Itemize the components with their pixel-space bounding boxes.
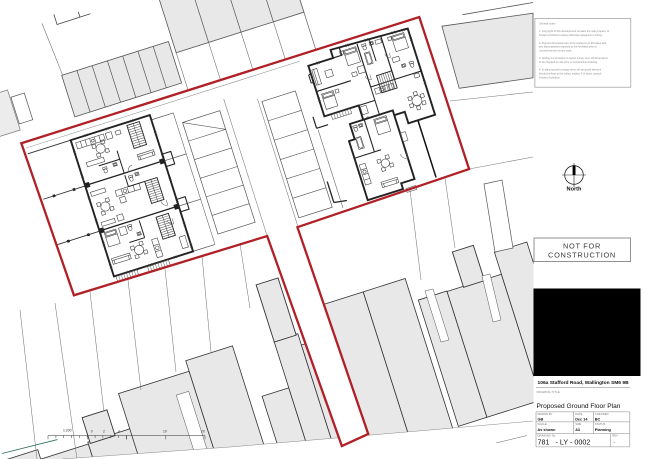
svg-text:General notes:: General notes: — [539, 22, 556, 26]
svg-text:DATE: DATE — [575, 412, 582, 416]
svg-text:DRAWING TITLE: DRAWING TITLE — [537, 390, 560, 394]
svg-text:BC: BC — [595, 417, 601, 421]
svg-text:SIZE: SIZE — [575, 422, 581, 426]
svg-text:North: North — [567, 187, 582, 193]
svg-text:Planning: Planning — [595, 428, 612, 432]
svg-text:Dec 14: Dec 14 — [575, 417, 588, 421]
svg-text:should be kept at the collect: should be kept at the collect settled. I… — [539, 72, 602, 76]
svg-text:2: 2 — [103, 429, 105, 433]
svg-text:4. In planning and ecology te: 4. In planning and ecology terms all str… — [539, 68, 601, 72]
svg-text:REV: REV — [612, 434, 618, 438]
svg-text:10: 10 — [163, 429, 167, 433]
svg-text:A3: A3 — [575, 428, 580, 432]
svg-text:Fosters Architects unless othe: Fosters Architects unless otherwise assi… — [539, 33, 603, 37]
svg-text:Proposed Ground Floor Plan: Proposed Ground Floor Plan — [537, 403, 621, 410]
svg-text:NOT FOR: NOT FOR — [563, 241, 601, 250]
svg-text:SCALE: SCALE — [538, 422, 547, 426]
svg-text:any discrepancies reported to: any discrepancies reported to the Archit… — [539, 45, 597, 49]
svg-text:STATUS: STATUS — [595, 422, 606, 426]
svg-text:781 - LY - 0002: 781 - LY - 0002 — [538, 437, 591, 446]
svg-text:As shown: As shown — [538, 428, 557, 432]
svg-text:3. Setting out is based on me: 3. Setting out is based on metric survey… — [539, 56, 608, 60]
svg-text:GB: GB — [538, 417, 544, 421]
svg-text:106a Stafford Road, Wallington: 106a Stafford Road, Wallington SM6 9B — [538, 380, 630, 386]
svg-text:Fosters Architects.: Fosters Architects. — [539, 75, 561, 79]
svg-text:1. Copyright of this developm: 1. Copyright of this development remains… — [539, 29, 609, 33]
svg-text:4: 4 — [118, 429, 120, 433]
svg-text:DRAWN BY: DRAWN BY — [538, 412, 553, 416]
svg-text:CONSTRUCTION: CONSTRUCTION — [548, 251, 616, 260]
svg-text:2. Figured dimensions are to: 2. Figured dimensions are to be worked t… — [539, 41, 607, 45]
svg-text:to be checked on site prior to: to be checked on site prior to construct… — [539, 60, 598, 64]
svg-text:20: 20 — [201, 429, 205, 433]
svg-text:0: 0 — [91, 429, 93, 433]
svg-text:1:200: 1:200 — [63, 429, 72, 433]
svg-text:commencement of any work.: commencement of any work. — [539, 49, 572, 53]
svg-text:CHECKED: CHECKED — [595, 412, 609, 416]
